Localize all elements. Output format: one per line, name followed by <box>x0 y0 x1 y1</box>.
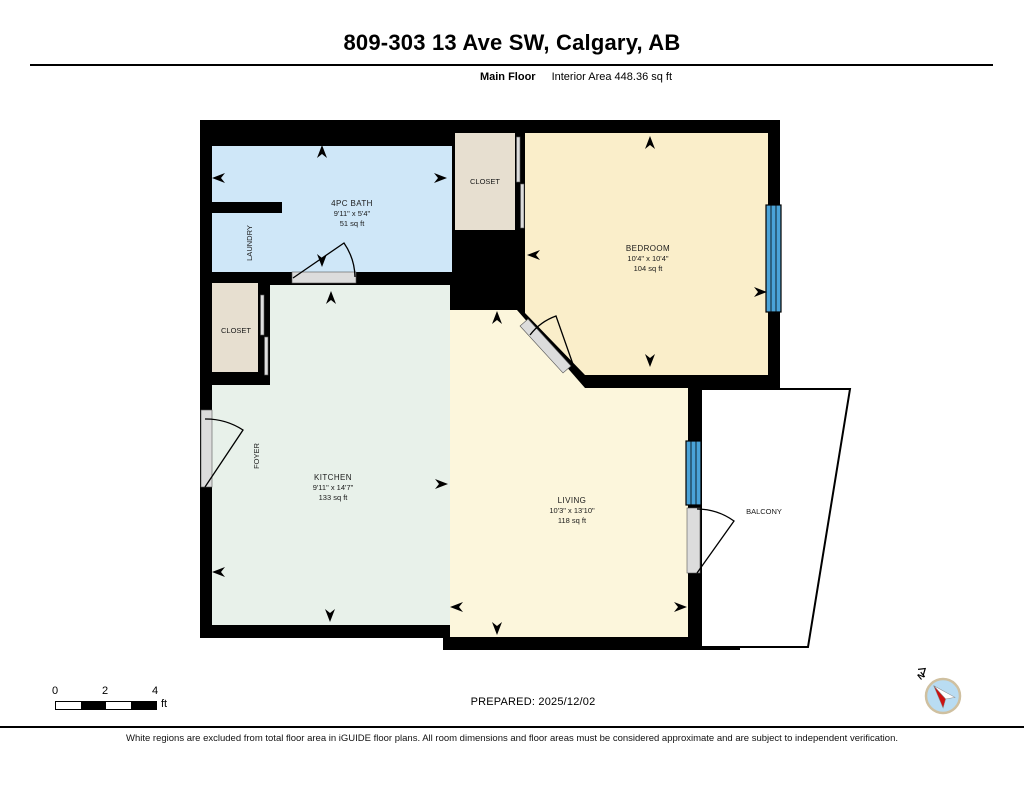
scale-segment <box>81 702 106 709</box>
door-sill <box>201 410 212 487</box>
door-sill <box>292 272 356 283</box>
balcony-floor <box>701 389 850 647</box>
sliding-panel <box>261 295 265 335</box>
scale-segment <box>56 702 81 709</box>
living-window <box>686 441 701 505</box>
laundry-divider-wall <box>212 202 282 213</box>
floorplan-page: 809-303 13 Ave SW, Calgary, AB Main Floo… <box>0 0 1024 791</box>
scale-segment <box>106 702 131 709</box>
laundry-label: LAUNDRY <box>245 225 254 261</box>
bath-dims: 9'11" x 5'4" <box>334 209 371 218</box>
bath-name: 4PC BATH <box>331 199 373 208</box>
window-glass <box>686 441 701 505</box>
living-dims: 10'3" x 13'10" <box>549 506 595 515</box>
footer-disclaimer: White regions are excluded from total fl… <box>0 733 1024 744</box>
sliding-panel <box>521 184 525 228</box>
scale-unit-label: ft <box>161 698 167 710</box>
north-indicator: N <box>914 665 930 681</box>
door-sill <box>687 508 700 573</box>
scale-segment <box>131 702 156 709</box>
kitchen-area: 133 sq ft <box>319 493 349 502</box>
prepared-date: PREPARED: 2025/12/02 <box>471 696 596 708</box>
kitchen-name: KITCHEN <box>314 473 352 482</box>
balcony-label: BALCONY <box>746 507 782 516</box>
bedroom-dims: 10'4" x 10'4" <box>627 254 668 263</box>
scale-bar-ruler <box>55 701 157 710</box>
floor-plan: 4PC BATH 9'11" x 5'4" 51 sq ft BEDROOM 1… <box>0 0 1024 791</box>
compass: N <box>903 660 979 730</box>
bedroom-window <box>766 205 781 312</box>
sliding-panel <box>265 337 269 375</box>
scale-tick-4: 4 <box>152 685 158 697</box>
footer-divider <box>0 726 1024 728</box>
bedroom-name: BEDROOM <box>626 244 670 253</box>
window-glass <box>766 205 781 312</box>
living-name: LIVING <box>558 496 587 505</box>
bath-area: 51 sq ft <box>340 219 366 228</box>
closet-top-label: CLOSET <box>470 177 500 186</box>
scale-tick-0: 0 <box>52 685 58 697</box>
scale-bar: 0 2 4 ft <box>55 685 235 715</box>
kitchen-dims: 9'11" x 14'7" <box>313 483 354 492</box>
scale-tick-2: 2 <box>102 685 108 697</box>
bedroom-area: 104 sq ft <box>634 264 664 273</box>
sliding-panel <box>517 137 521 182</box>
closet-left-label: CLOSET <box>221 326 251 335</box>
foyer-label: FOYER <box>252 443 261 469</box>
living-area: 118 sq ft <box>558 516 587 525</box>
north-label: N <box>915 670 926 682</box>
